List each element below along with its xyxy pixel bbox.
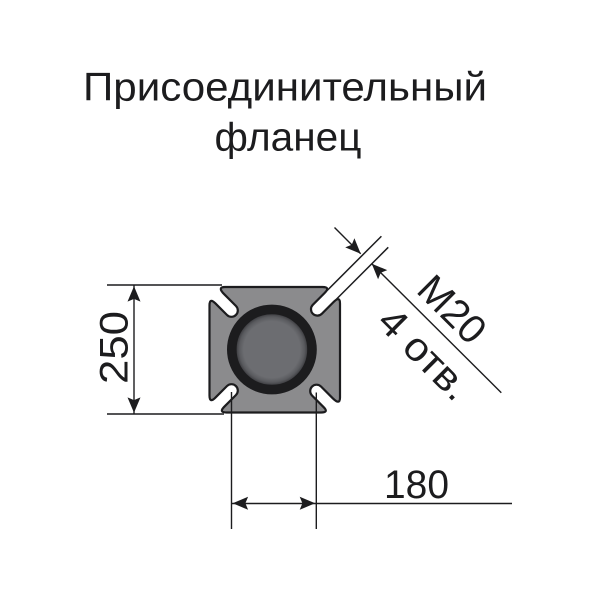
svg-text:Присоединительный: Присоединительный xyxy=(83,66,487,110)
svg-text:250: 250 xyxy=(93,311,137,384)
svg-text:180: 180 xyxy=(384,463,449,507)
svg-text:фланец: фланец xyxy=(215,115,362,159)
